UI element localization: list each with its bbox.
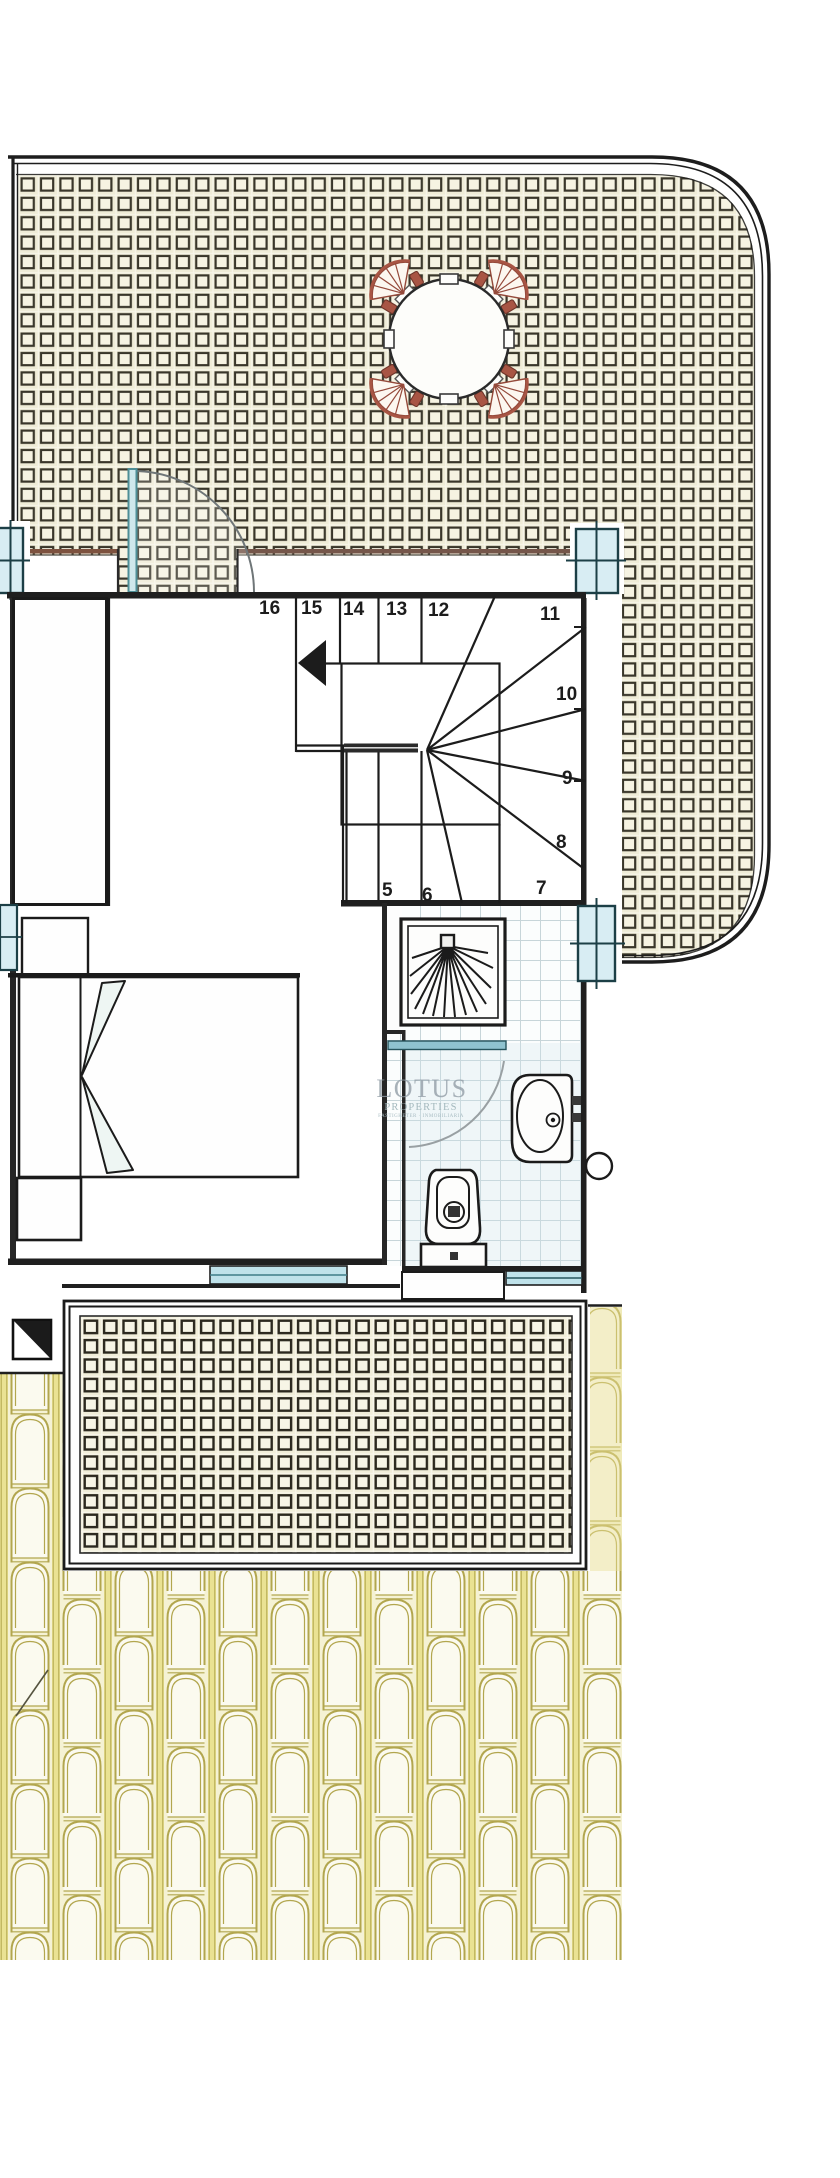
- svg-text:16: 16: [259, 598, 280, 619]
- svg-text:12: 12: [428, 600, 449, 621]
- svg-text:6: 6: [422, 885, 433, 906]
- svg-text:FASTIGHETER · INMOBILIARIA: FASTIGHETER · INMOBILIARIA: [378, 1114, 464, 1119]
- svg-text:13: 13: [386, 599, 407, 620]
- svg-text:9: 9: [562, 768, 573, 789]
- svg-text:7: 7: [536, 878, 547, 899]
- svg-text:11: 11: [540, 604, 561, 625]
- svg-text:15: 15: [301, 598, 323, 619]
- svg-text:PROPERTIES: PROPERTIES: [384, 1102, 457, 1113]
- svg-text:5: 5: [382, 880, 393, 901]
- svg-text:LOTUS: LOTUS: [376, 1074, 467, 1103]
- svg-text:8: 8: [556, 832, 567, 853]
- svg-text:14: 14: [343, 599, 365, 620]
- svg-text:10: 10: [556, 684, 577, 705]
